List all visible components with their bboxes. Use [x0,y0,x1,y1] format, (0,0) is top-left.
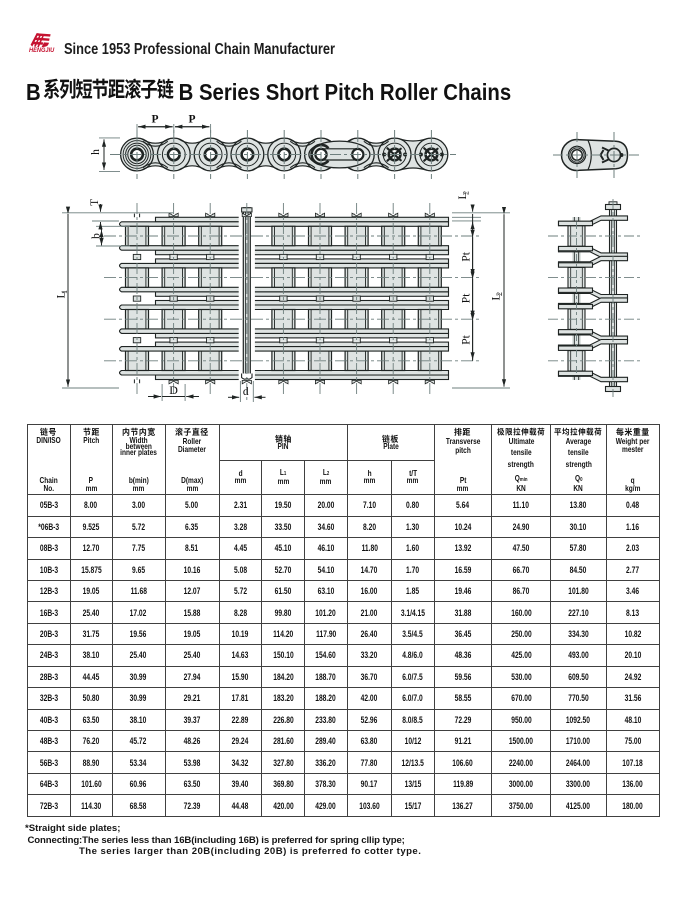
svg-text:2: 2 [462,191,471,195]
svg-text:2: 2 [495,292,504,296]
svg-text:P: P [188,114,195,126]
svg-text:d: d [243,386,249,398]
svg-text:1: 1 [60,290,69,294]
svg-text:Pt: Pt [461,293,473,303]
svg-text:D: D [169,383,178,397]
svg-text:P: P [151,114,158,126]
svg-text:h: h [90,149,102,155]
svg-text:Pt: Pt [461,334,473,344]
svg-text:b: b [91,233,103,239]
svg-text:T: T [89,199,101,206]
svg-text:Pt: Pt [461,251,473,261]
